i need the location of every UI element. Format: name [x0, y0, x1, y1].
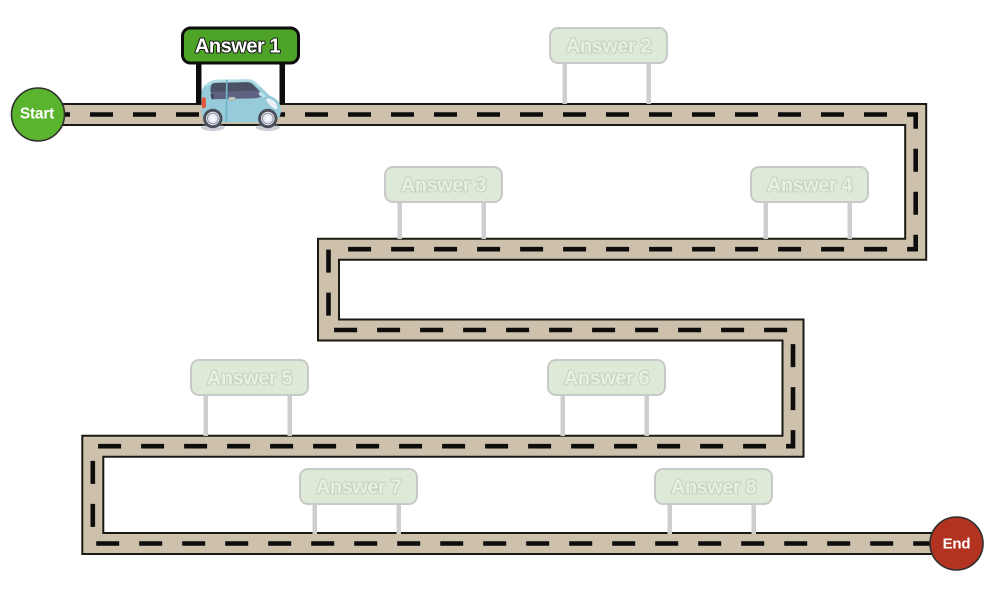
svg-text:Answer 4: Answer 4: [767, 175, 854, 197]
svg-text:Answer 5: Answer 5: [207, 368, 293, 390]
svg-text:Answer 6: Answer 6: [564, 368, 650, 390]
svg-text:Answer 8: Answer 8: [671, 477, 757, 499]
svg-text:Answer 1: Answer 1: [195, 36, 281, 58]
svg-text:Answer 3: Answer 3: [401, 175, 487, 197]
svg-text:Start: Start: [20, 106, 54, 123]
svg-text:End: End: [943, 535, 971, 552]
svg-text:Answer 7: Answer 7: [316, 477, 402, 499]
svg-text:Answer 2: Answer 2: [566, 36, 652, 58]
